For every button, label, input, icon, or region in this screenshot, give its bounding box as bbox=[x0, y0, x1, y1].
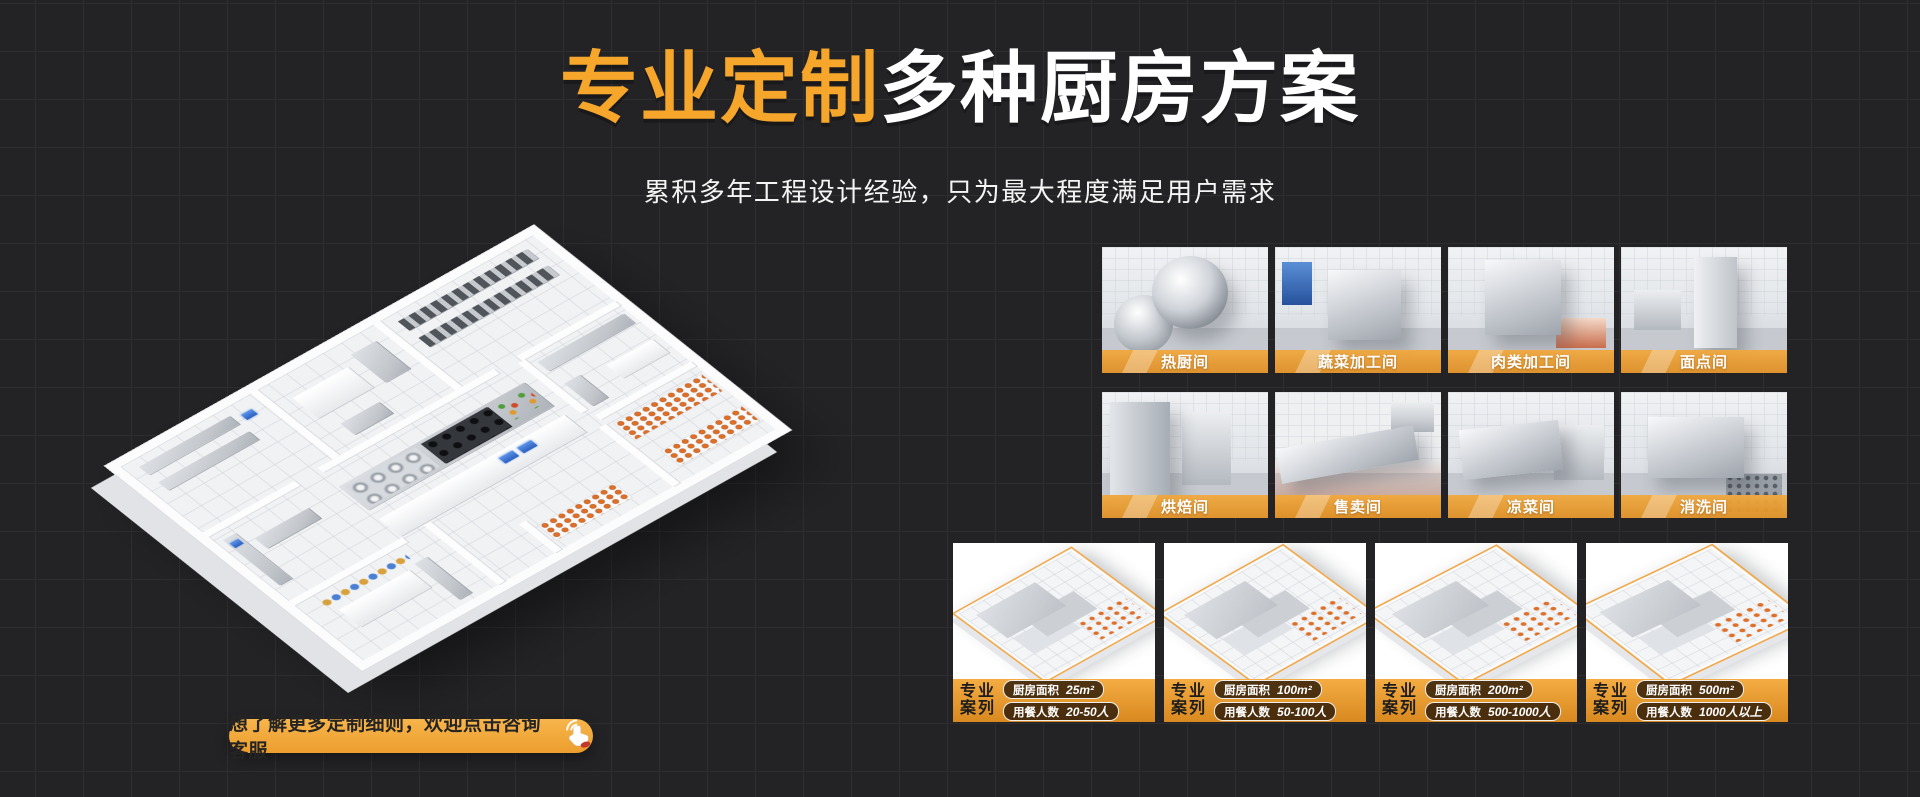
room-label-banner: 凉菜间 bbox=[1448, 495, 1614, 518]
kitchen-area-badge: 厨房面积200m² bbox=[1425, 680, 1533, 699]
case-card-25m2: 专业案列 厨房面积25m² 用餐人数20-50人 bbox=[953, 543, 1155, 722]
case-badges: 厨房面积25m² 用餐人数20-50人 bbox=[1003, 680, 1119, 721]
room-label-banner: 售卖间 bbox=[1275, 495, 1441, 518]
room-label: 售卖间 bbox=[1334, 496, 1382, 517]
title-highlight: 专业定制 bbox=[560, 44, 880, 132]
case-photo bbox=[953, 543, 1155, 679]
case-card-100m2: 专业案列 厨房面积100m² 用餐人数50-100人 bbox=[1164, 543, 1366, 722]
room-label-banner: 肉类加工间 bbox=[1448, 350, 1614, 373]
room-tile-hot-kitchen: 热厨间 bbox=[1102, 247, 1268, 373]
consult-button[interactable]: 想了解更多定制细则，欢迎点击咨询客服 bbox=[229, 719, 593, 753]
case-footer: 专业案列 厨房面积200m² 用餐人数500-1000人 bbox=[1375, 679, 1577, 722]
kitchen-area-badge: 厨房面积500m² bbox=[1636, 680, 1744, 699]
room-tile-dishwashing: 消洗间 bbox=[1621, 392, 1787, 518]
case-badges: 厨房面积200m² 用餐人数500-1000人 bbox=[1425, 680, 1561, 721]
diners-badge: 用餐人数20-50人 bbox=[1003, 702, 1119, 721]
case-photo bbox=[1164, 543, 1366, 679]
case-tag: 专业案列 bbox=[1382, 684, 1418, 718]
kitchen-floorplan-illustration bbox=[168, 248, 734, 654]
kitchen-area-badge: 厨房面积100m² bbox=[1214, 680, 1322, 699]
kitchen-area-badge: 厨房面积25m² bbox=[1003, 680, 1104, 699]
room-tile-vegetable-processing: 蔬菜加工间 bbox=[1275, 247, 1441, 373]
case-footer: 专业案列 厨房面积500m² 用餐人数1000人以上 bbox=[1586, 679, 1788, 722]
room-tile-meat-processing: 肉类加工间 bbox=[1448, 247, 1614, 373]
room-tile-serving: 售卖间 bbox=[1275, 392, 1441, 518]
room-label-banner: 热厨间 bbox=[1102, 350, 1268, 373]
case-footer: 专业案列 厨房面积100m² 用餐人数50-100人 bbox=[1164, 679, 1366, 722]
floorplan-slab bbox=[91, 247, 777, 693]
room-label: 凉菜间 bbox=[1507, 496, 1555, 517]
case-tag: 专业案列 bbox=[1593, 684, 1629, 718]
floorplan-floor bbox=[105, 225, 791, 671]
click-hand-icon bbox=[561, 717, 593, 749]
room-label-banner: 烘焙间 bbox=[1102, 495, 1268, 518]
case-tag: 专业案列 bbox=[1171, 684, 1207, 718]
room-label: 消洗间 bbox=[1680, 496, 1728, 517]
room-label: 热厨间 bbox=[1161, 351, 1209, 372]
page-subtitle: 累积多年工程设计经验，只为最大程度满足用户需求 bbox=[0, 172, 1920, 209]
case-card-500m2: 专业案列 厨房面积500m² 用餐人数1000人以上 bbox=[1586, 543, 1788, 722]
room-tile-cold-dish: 凉菜间 bbox=[1448, 392, 1614, 518]
room-tile-baking: 烘焙间 bbox=[1102, 392, 1268, 518]
diners-badge: 用餐人数500-1000人 bbox=[1425, 702, 1561, 721]
case-card-row: 专业案列 厨房面积25m² 用餐人数20-50人 专业案列 厨房面积100m² … bbox=[953, 543, 1788, 722]
room-label-banner: 消洗间 bbox=[1621, 495, 1787, 518]
room-label: 烘焙间 bbox=[1161, 496, 1209, 517]
case-badges: 厨房面积500m² 用餐人数1000人以上 bbox=[1636, 680, 1772, 721]
room-label: 面点间 bbox=[1680, 351, 1728, 372]
case-tag: 专业案列 bbox=[960, 684, 996, 718]
case-photo bbox=[1375, 543, 1577, 679]
diners-badge: 用餐人数1000人以上 bbox=[1636, 702, 1772, 721]
room-tile-pastry: 面点间 bbox=[1621, 247, 1787, 373]
hero-section: 专业定制多种厨房方案 累积多年工程设计经验，只为最大程度满足用户需求 bbox=[0, 0, 1920, 797]
room-label: 肉类加工间 bbox=[1491, 351, 1571, 372]
case-footer: 专业案列 厨房面积25m² 用餐人数20-50人 bbox=[953, 679, 1155, 722]
title-rest: 多种厨房方案 bbox=[880, 44, 1360, 132]
room-label: 蔬菜加工间 bbox=[1318, 351, 1398, 372]
room-label-banner: 蔬菜加工间 bbox=[1275, 350, 1441, 373]
case-badges: 厨房面积100m² 用餐人数50-100人 bbox=[1214, 680, 1336, 721]
page-title: 专业定制多种厨房方案 bbox=[0, 48, 1920, 130]
consult-button-label: 想了解更多定制细则，欢迎点击咨询客服 bbox=[229, 709, 557, 763]
case-photo bbox=[1586, 543, 1788, 679]
room-label-banner: 面点间 bbox=[1621, 350, 1787, 373]
case-card-200m2: 专业案列 厨房面积200m² 用餐人数500-1000人 bbox=[1375, 543, 1577, 722]
diners-badge: 用餐人数50-100人 bbox=[1214, 702, 1336, 721]
room-grid: 热厨间 蔬菜加工间 肉类加工间 面点间 烘焙间 售卖间 凉菜间 消洗间 bbox=[1102, 247, 1787, 518]
